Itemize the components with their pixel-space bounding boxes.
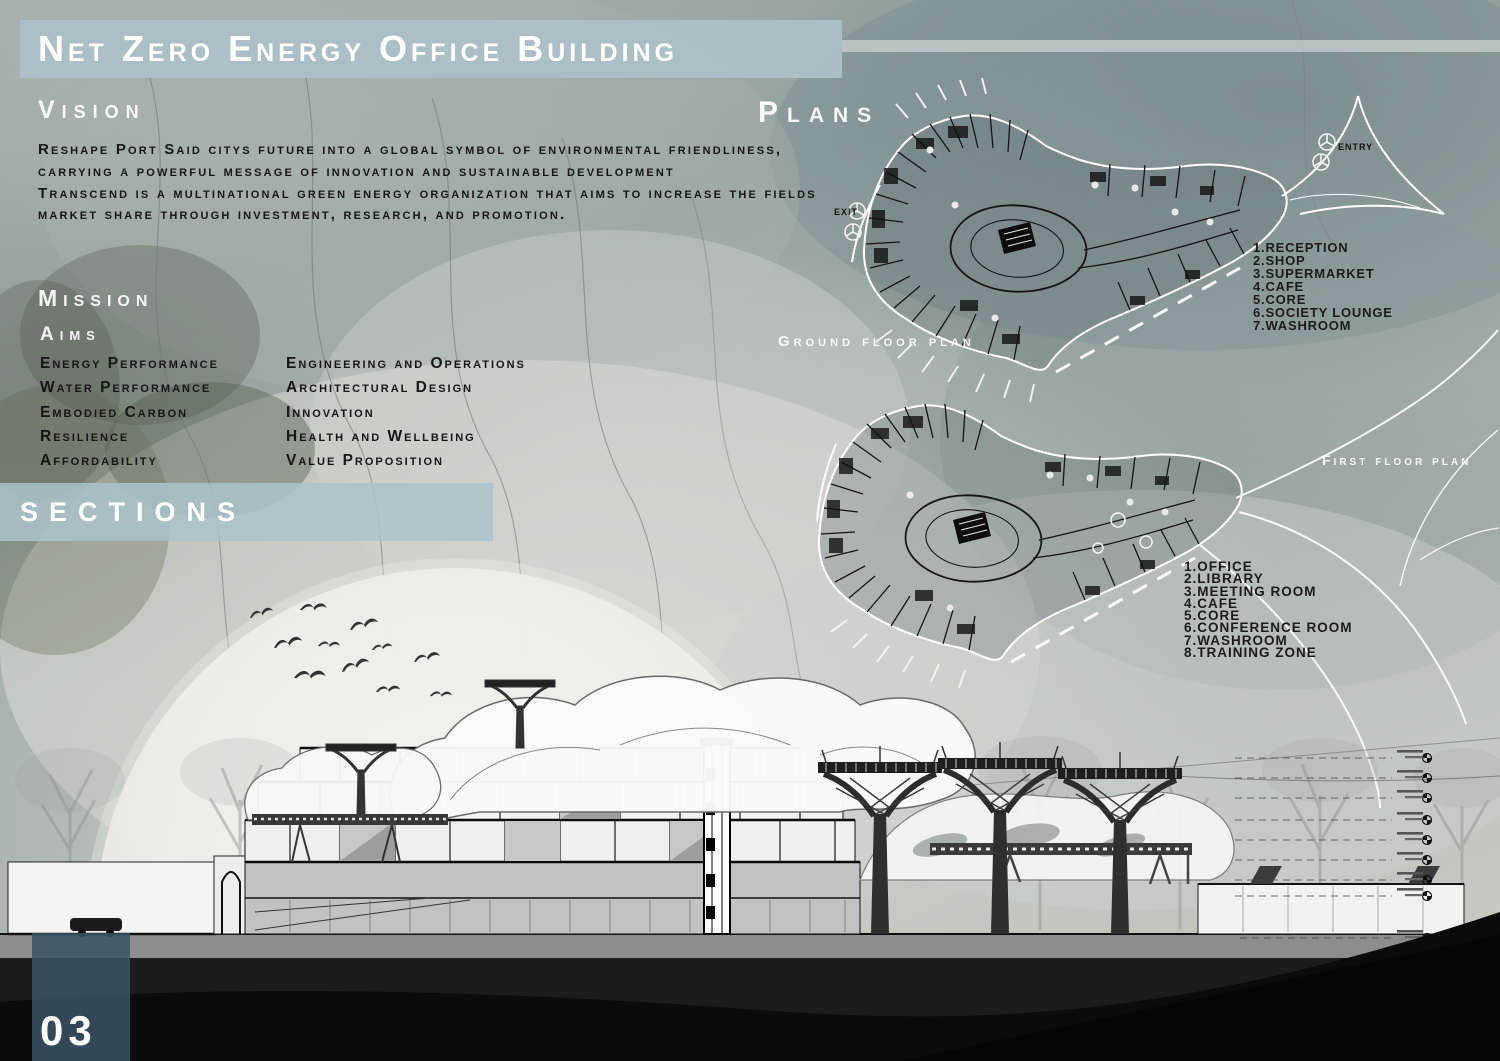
page-number: 03 xyxy=(40,1007,97,1055)
vision-paragraphs: Reshape Port Said citys future into a gl… xyxy=(38,139,838,226)
aim-item: Embodied Carbon xyxy=(40,401,286,425)
ground-floor-plan-label: Ground floor plan xyxy=(778,333,975,350)
aim-item: Energy Performance xyxy=(40,352,286,376)
aim-item: Health and Wellbeing xyxy=(286,425,526,449)
entry-label: ENTRY xyxy=(1338,142,1373,152)
aim-item: Architectural Design xyxy=(286,376,526,400)
aims-column-1: Energy Performance Water Performance Emb… xyxy=(40,352,286,473)
plans-heading: Plans xyxy=(758,96,880,130)
legend-item: 7.WASHROOM xyxy=(1253,319,1393,332)
board-title: Net Zero Energy Office Building xyxy=(38,28,678,70)
title-banner: Net Zero Energy Office Building xyxy=(20,20,842,78)
sections-banner: SECTIONS xyxy=(0,483,493,541)
first-floor-plan-label: First floor plan xyxy=(1322,452,1471,468)
aims-column-2: Engineering and Operations Architectural… xyxy=(286,352,526,473)
mission-heading: Mission xyxy=(38,285,153,312)
vision-paragraph-1: Reshape Port Said citys future into a gl… xyxy=(38,139,838,183)
aims-list: Energy Performance Water Performance Emb… xyxy=(40,352,526,473)
aim-item: Innovation xyxy=(286,401,526,425)
presentation-board: Net Zero Energy Office Building Vision R… xyxy=(0,0,1500,1061)
aim-item: Water Performance xyxy=(40,376,286,400)
first-floor-legend: 1.OFFICE 2.LIBRARY 3.MEETING ROOM 4.CAFE… xyxy=(1184,561,1353,659)
car-silhouette xyxy=(70,918,122,931)
title-bar-extension xyxy=(842,40,1500,52)
aim-item: Value Proposition xyxy=(286,449,526,473)
road-band xyxy=(0,934,1500,960)
exit-label: EXIT xyxy=(834,207,858,217)
ground-floor-legend: 1.RECEPTION 2.SHOP 3.SUPERMARKET 4.CAFE … xyxy=(1253,241,1393,332)
aim-item: Affordability xyxy=(40,449,286,473)
sections-heading: SECTIONS xyxy=(20,497,246,528)
aim-item: Engineering and Operations xyxy=(286,352,526,376)
page-number-tab: 03 xyxy=(32,933,130,1061)
vision-heading: Vision xyxy=(38,96,146,125)
aims-heading: Aims xyxy=(40,324,101,346)
left-wall xyxy=(8,856,250,937)
vision-paragraph-2: Transcend is a multinational green energ… xyxy=(38,183,838,227)
legend-item: 8.TRAINING ZONE xyxy=(1184,647,1353,659)
aim-item: Resilience xyxy=(40,425,286,449)
